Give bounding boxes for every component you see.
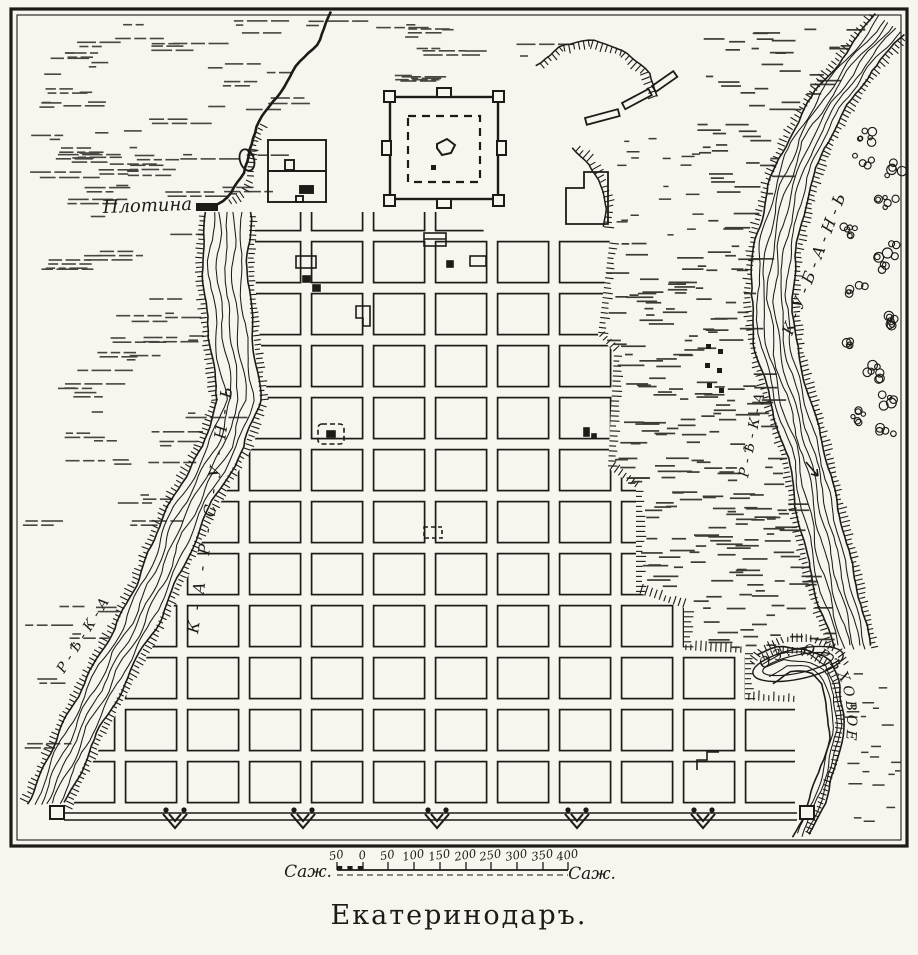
- building: [584, 428, 589, 436]
- map-title: Екатеринодаръ.: [331, 900, 588, 931]
- map-figure: Плотина К-А-Р-С-У-Н-Ь Р-Ѣ-К-А К-У-Б-А-Н-…: [0, 0, 918, 955]
- fortress: [382, 88, 506, 208]
- dam-bar: [196, 203, 218, 211]
- scale-tick-2: 50: [379, 847, 396, 863]
- building: [447, 261, 453, 267]
- road-end-square: [50, 806, 64, 819]
- building: [592, 434, 596, 438]
- scale-unit-left: Саж.: [284, 862, 332, 882]
- church-mark: [327, 431, 335, 437]
- scale-subdivisions: [337, 866, 363, 870]
- label-dam: Плотина: [101, 194, 192, 218]
- ekaterinodar-map: Плотина К-А-Р-С-У-Н-Ь Р-Ѣ-К-А К-У-Б-А-Н-…: [0, 0, 918, 955]
- scale-unit-right: Саж.: [568, 864, 616, 884]
- building: [313, 285, 320, 291]
- scale-tick-0: 50: [328, 847, 345, 863]
- road-end-square: [800, 806, 814, 819]
- building: [303, 276, 310, 282]
